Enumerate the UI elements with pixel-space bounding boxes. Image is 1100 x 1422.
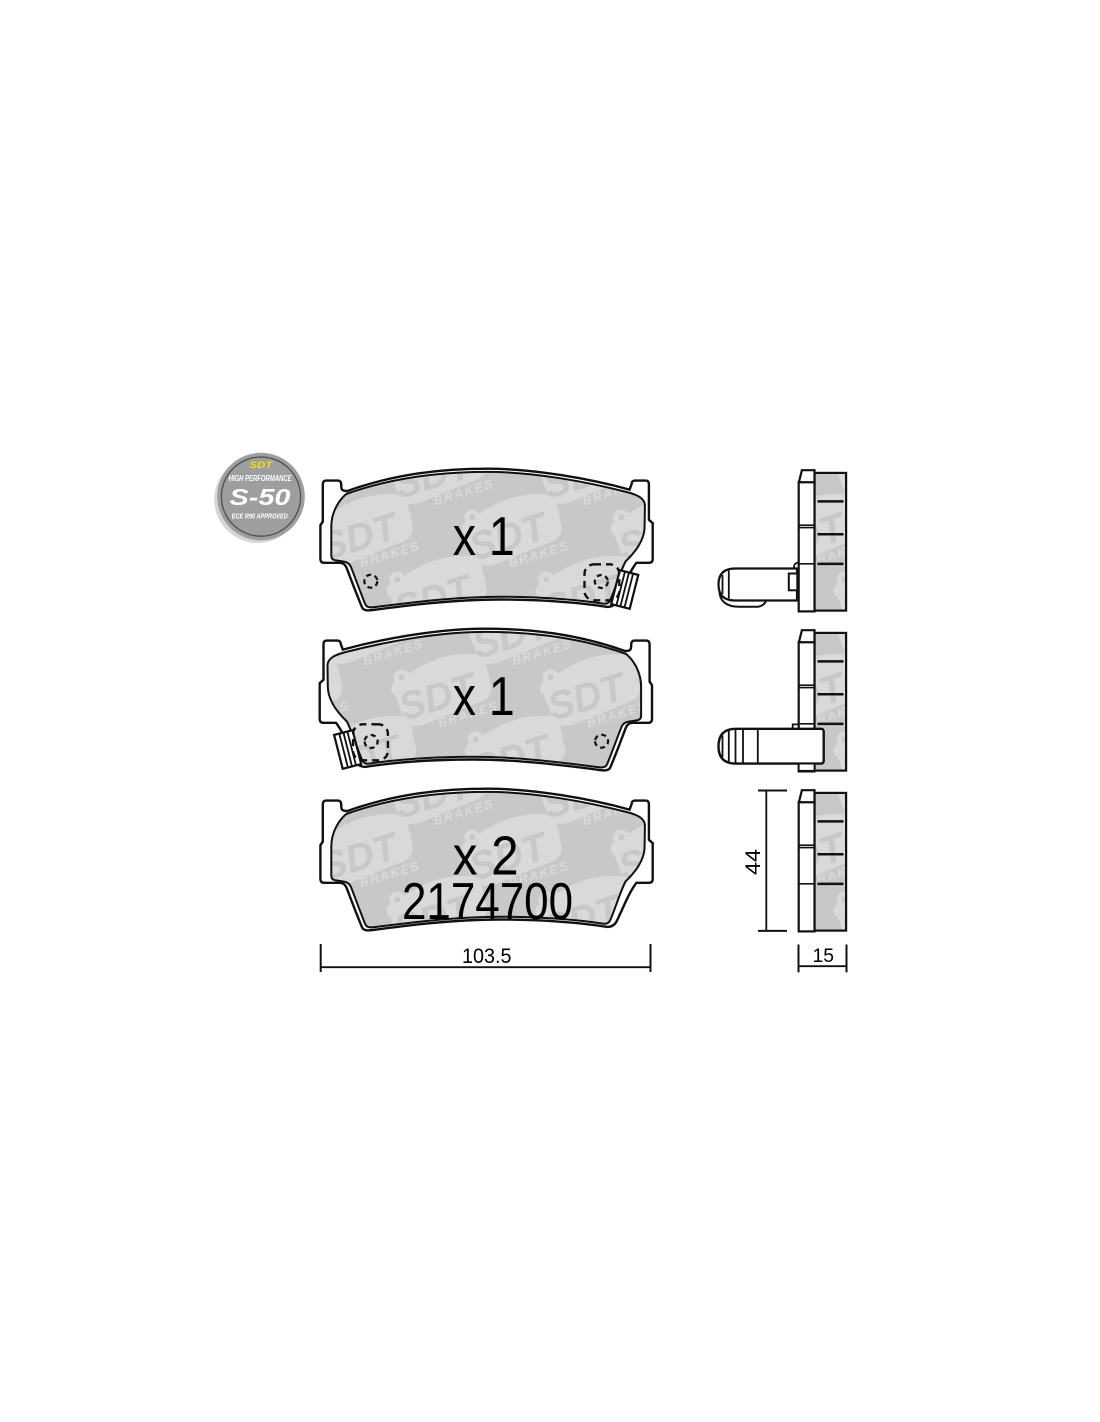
svg-text:2174700: 2174700 bbox=[402, 872, 573, 930]
svg-text:103.5: 103.5 bbox=[462, 945, 512, 968]
svg-text:SDT: SDT bbox=[250, 460, 275, 470]
svg-text:15: 15 bbox=[813, 946, 835, 967]
svg-text:x 1: x 1 bbox=[453, 506, 515, 567]
svg-text:HIGH PERFORMANCE: HIGH PERFORMANCE bbox=[229, 474, 292, 483]
svg-text:x 1: x 1 bbox=[453, 666, 515, 727]
svg-text:ECE R90 APPROVED: ECE R90 APPROVED bbox=[232, 512, 288, 521]
svg-text:44: 44 bbox=[742, 849, 765, 875]
svg-text:S-50: S-50 bbox=[230, 484, 291, 510]
